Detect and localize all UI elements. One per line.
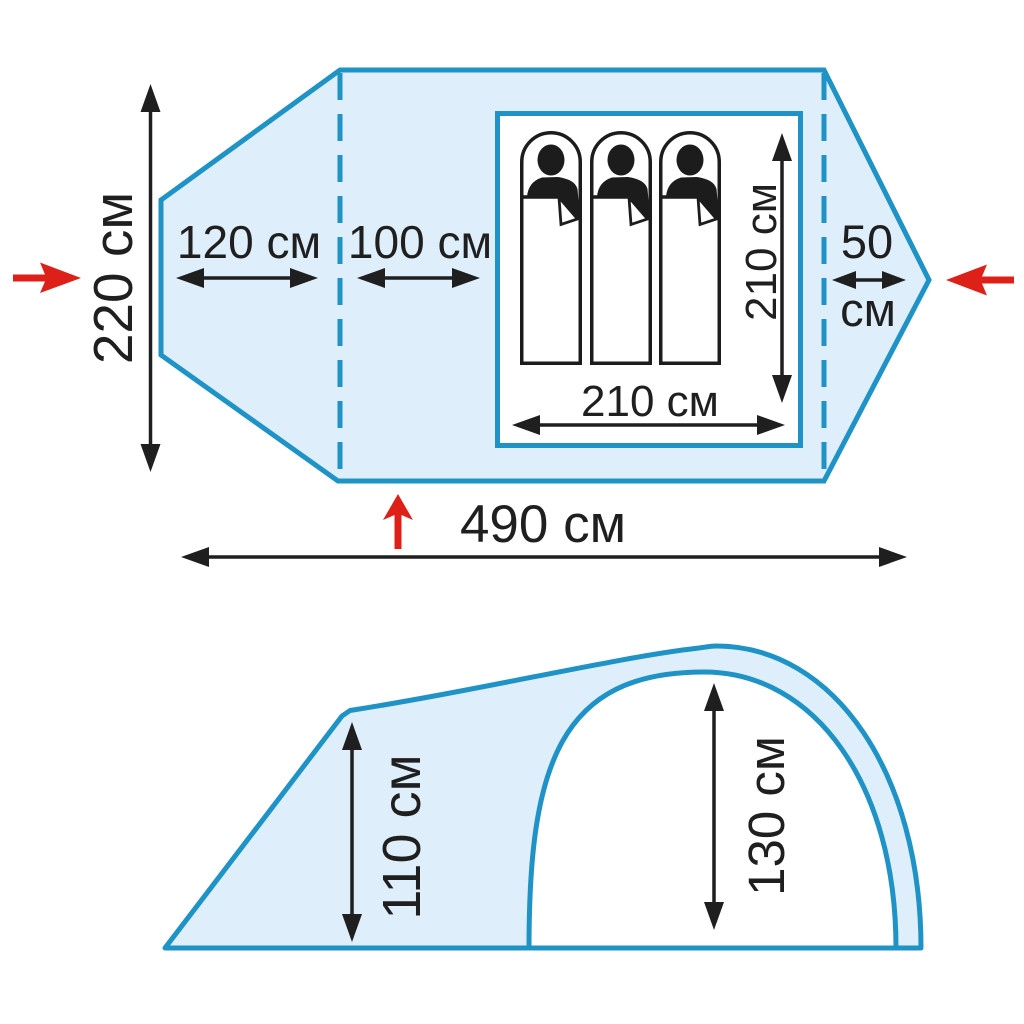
svg-text:210 см: 210 см bbox=[581, 377, 719, 426]
svg-text:100 см: 100 см bbox=[348, 216, 492, 268]
svg-text:110 см: 110 см bbox=[372, 754, 432, 919]
svg-text:130 см: 130 см bbox=[738, 736, 795, 896]
svg-text:50: 50 bbox=[841, 215, 893, 268]
svg-text:220 см: 220 см bbox=[82, 192, 144, 364]
svg-text:490 см: 490 см bbox=[460, 495, 626, 554]
svg-text:120 см: 120 см bbox=[177, 216, 321, 268]
svg-text:210 см: 210 см bbox=[737, 183, 786, 321]
svg-text:см: см bbox=[840, 283, 896, 336]
